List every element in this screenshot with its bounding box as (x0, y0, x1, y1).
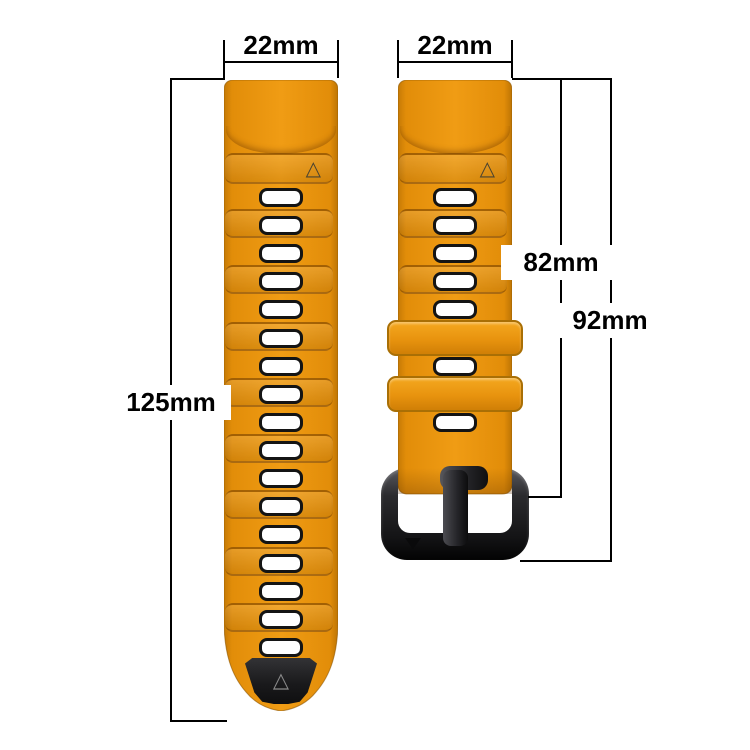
total-length-label: 92mm (550, 303, 670, 338)
strap-hole (259, 554, 303, 573)
long-strap: △ △ (224, 80, 338, 711)
strap-hole (433, 357, 477, 376)
buckle-strap: △ (398, 80, 512, 496)
strap-hole (433, 244, 477, 263)
strap-hole (433, 188, 477, 207)
keeper-loop (387, 320, 523, 356)
strap-hole (433, 300, 477, 319)
strap-hole (259, 469, 303, 488)
buckle-length-bottom-tick (528, 496, 562, 498)
right-dims-top-tick (512, 78, 612, 80)
strap-to-buckle-length-label: 82mm (501, 245, 621, 280)
strap-hole (259, 525, 303, 544)
strap-hole (259, 497, 303, 516)
product-diagram: 22mm 22mm 125mm 82mm 92mm (0, 0, 750, 750)
right-strap-width-label: 22mm (398, 28, 512, 63)
strap-hole (259, 188, 303, 207)
strap-hole (433, 216, 477, 235)
keeper-loop (387, 376, 523, 412)
buckle-length-dim-line (560, 78, 562, 498)
strap-hole (259, 272, 303, 291)
buckle-prong (443, 470, 468, 546)
buckle-marker-triangle-icon (405, 538, 421, 549)
strap-hole (259, 216, 303, 235)
left-strap-length-label: 125mm (111, 385, 231, 420)
left-strap-width-label: 22mm (224, 28, 338, 63)
strap-hole (433, 272, 477, 291)
strap-hole (259, 244, 303, 263)
strap-hole (259, 610, 303, 629)
strap-hole (259, 300, 303, 319)
strap-hole (259, 329, 303, 348)
strap-hole (259, 357, 303, 376)
alignment-band: △ (399, 153, 507, 184)
strap-hole (433, 413, 477, 432)
length-dim-top-tick (170, 78, 225, 80)
length-dim-bottom-tick (170, 720, 227, 722)
total-length-bottom-tick (520, 560, 612, 562)
strap-hole (259, 385, 303, 404)
strap-hole (259, 441, 303, 460)
strap-hole (259, 413, 303, 432)
alignment-triangle-icon: △ (480, 156, 495, 180)
strap-hole (259, 582, 303, 601)
tip-triangle-icon: △ (273, 670, 289, 691)
alignment-band: △ (225, 153, 333, 184)
alignment-triangle-icon: △ (306, 156, 321, 180)
strap-hole (259, 638, 303, 657)
